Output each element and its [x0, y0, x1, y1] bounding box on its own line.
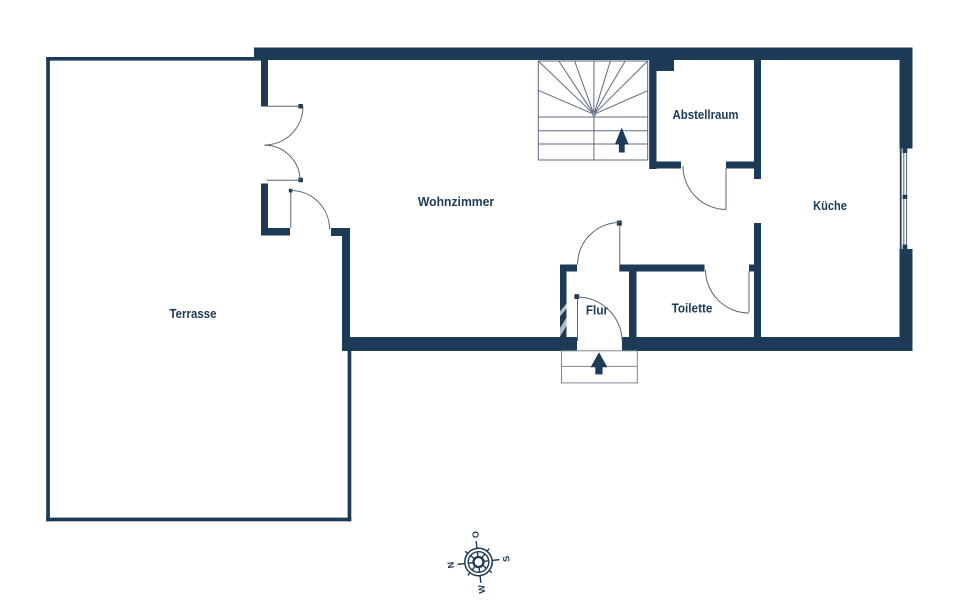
svg-text:Toilette: Toilette: [672, 301, 713, 316]
svg-text:Abstellraum: Abstellraum: [673, 107, 739, 122]
svg-text:Terrasse: Terrasse: [170, 306, 217, 321]
svg-text:Flur: Flur: [586, 303, 608, 318]
svg-text:O: O: [470, 531, 481, 539]
svg-text:W: W: [476, 584, 487, 594]
svg-text:Küche: Küche: [813, 198, 847, 213]
svg-text:N: N: [446, 561, 457, 569]
svg-text:Wohnzimmer: Wohnzimmer: [418, 194, 494, 209]
svg-text:S: S: [501, 555, 512, 562]
